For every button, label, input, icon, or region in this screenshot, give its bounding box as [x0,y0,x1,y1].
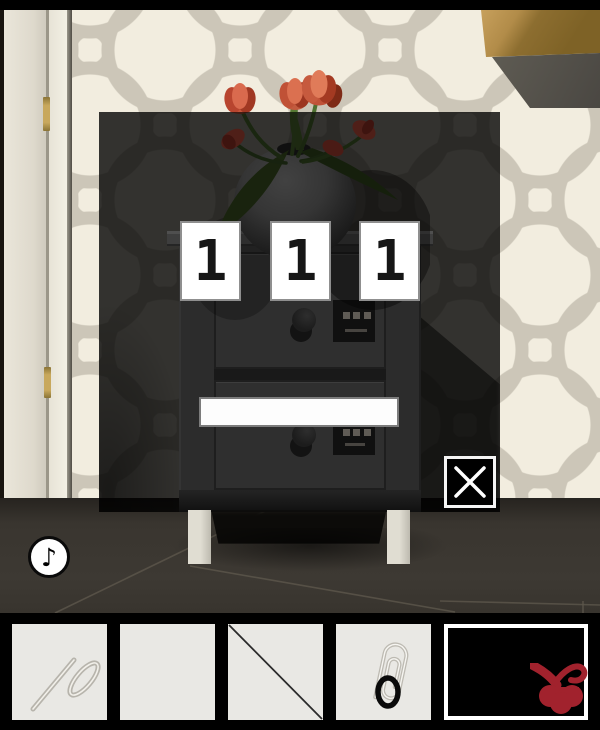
tulip-bloom [539,685,583,714]
corner-shadow [99,300,189,512]
code-card-3[interactable]: 1 [359,221,420,301]
floor-seam [440,601,600,605]
paperclip-with-ring-icon [336,624,431,720]
code-digit: 1 [194,229,228,294]
wood-shelf-underside [492,53,600,108]
door-hinge-bottom [44,367,51,398]
music-note-icon: ♪ [41,545,57,570]
diagonal-line-icon [228,624,323,720]
music-toggle-button[interactable]: ♪ [28,536,70,578]
inventory-slot-1[interactable] [12,624,107,720]
code-card-2[interactable]: 1 [270,221,331,301]
cabinet-bottom-rail [179,490,421,512]
close-x-icon [447,459,493,505]
cabinet-leg-right [387,510,410,564]
lock-indicator [353,429,360,436]
wood-shelf-face [481,10,600,57]
game-stage: 1 1 1 ♪ [0,0,600,730]
lock-indicator [364,429,371,436]
drawer-divider [214,369,386,380]
code-card-1[interactable]: 1 [180,221,241,301]
close-button[interactable] [444,456,496,508]
door-frame-reveal [67,10,72,500]
code-digit: 1 [373,229,407,294]
inventory-slot-4[interactable] [336,624,431,720]
cabinet-leg-left [188,510,211,564]
lock-slot [345,443,365,446]
code-digit: 1 [284,229,318,294]
tulip-vase-arrangement [200,55,430,345]
answer-input-bar[interactable] [199,397,399,427]
tulip-item-icon [530,663,592,719]
floor-seam [190,566,455,612]
door-hinge-top [43,97,50,131]
straightened-paperclip-icon [12,624,107,720]
inventory-slot-2[interactable] [120,624,215,720]
door-jamb [49,10,67,500]
inventory-slot-3[interactable] [228,624,323,720]
lock-indicator [343,429,350,436]
wood-shelf-corner [420,10,600,110]
door[interactable] [4,10,46,500]
